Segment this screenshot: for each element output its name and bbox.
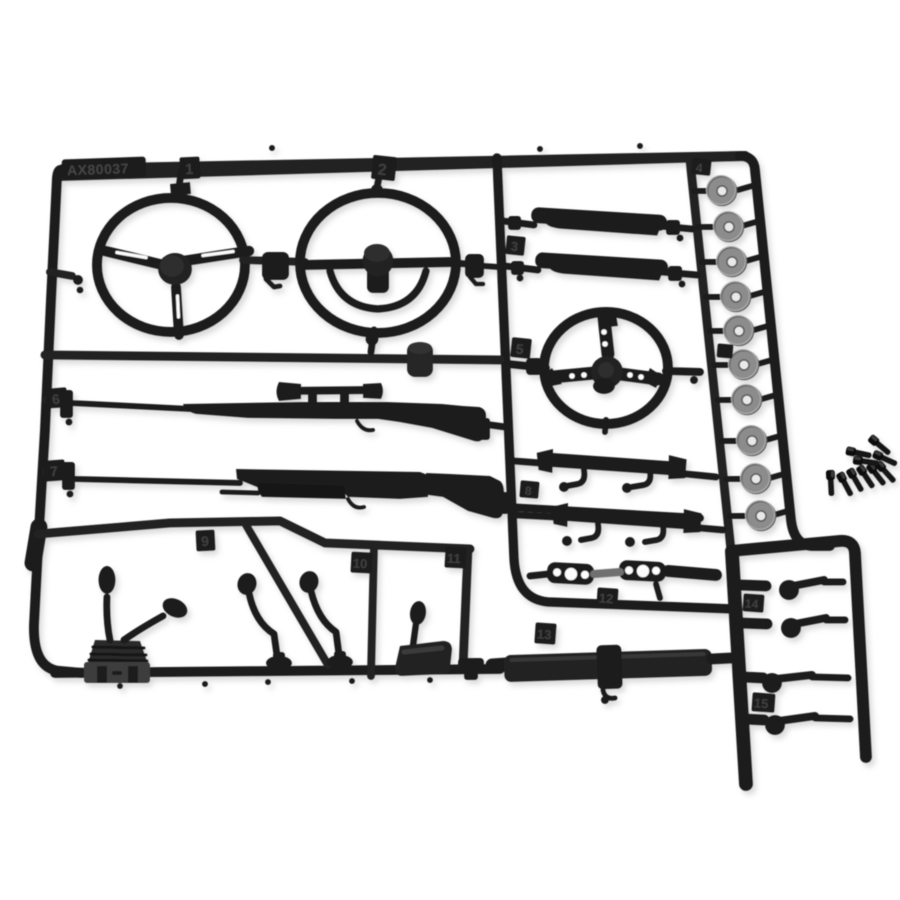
svg-text:6: 6 [52,391,61,408]
svg-text:2: 2 [377,161,388,179]
svg-text:12: 12 [598,590,613,606]
svg-text:7: 7 [50,463,59,480]
svg-text:1: 1 [185,161,194,178]
svg-text:9: 9 [201,533,210,549]
svg-text:11: 11 [447,551,462,567]
svg-text:14: 14 [744,596,759,611]
svg-text:10: 10 [353,556,368,572]
svg-text:15: 15 [753,695,768,711]
svg-text:AX80037: AX80037 [67,160,129,178]
svg-text:13: 13 [536,626,551,642]
